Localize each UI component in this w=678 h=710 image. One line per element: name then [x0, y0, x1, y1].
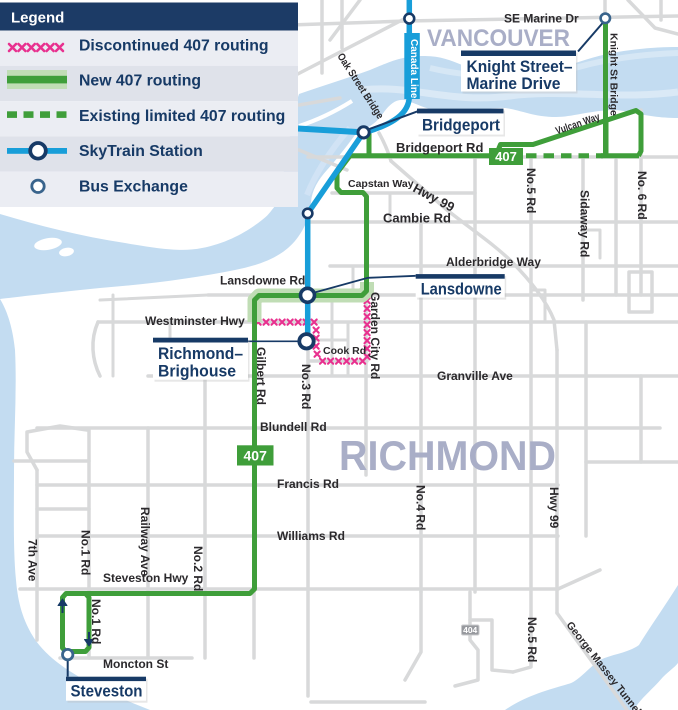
svg-text:Cambie Rd: Cambie Rd — [383, 211, 451, 226]
svg-text:Blundell Rd: Blundell Rd — [260, 420, 327, 434]
svg-text:New 407 routing: New 407 routing — [79, 73, 201, 90]
svg-text:Bus Exchange: Bus Exchange — [79, 179, 188, 196]
svg-text:Garden City Rd: Garden City Rd — [368, 292, 382, 379]
svg-text:VANCOUVER: VANCOUVER — [427, 25, 570, 52]
svg-text:No.1 Rd: No.1 Rd — [89, 599, 103, 644]
svg-text:Hwy 99: Hwy 99 — [547, 487, 561, 529]
svg-text:Bridgeport: Bridgeport — [422, 116, 500, 135]
svg-text:Steveston: Steveston — [71, 682, 143, 701]
svg-text:407: 407 — [495, 149, 517, 164]
svg-text:SkyTrain Station: SkyTrain Station — [79, 143, 203, 160]
svg-text:7th Ave: 7th Ave — [26, 539, 40, 582]
svg-text:Knight St Bridge: Knight St Bridge — [608, 33, 620, 116]
svg-text:No.5 Rd: No.5 Rd — [524, 168, 538, 213]
svg-text:Richmond–: Richmond– — [158, 344, 243, 363]
svg-text:Gilbert Rd: Gilbert Rd — [254, 347, 268, 405]
svg-text:Railway Ave: Railway Ave — [138, 507, 152, 576]
svg-text:Cook Rd: Cook Rd — [323, 345, 366, 357]
svg-text:407: 407 — [244, 448, 268, 464]
svg-text:Westminster Hwy: Westminster Hwy — [145, 314, 245, 328]
svg-text:Bridgeport Rd: Bridgeport Rd — [396, 140, 483, 155]
svg-text:Francis Rd: Francis Rd — [277, 477, 339, 491]
svg-text:Canada Line: Canada Line — [408, 39, 419, 99]
svg-text:Sidaway Rd: Sidaway Rd — [578, 190, 592, 257]
svg-text:Marine Drive: Marine Drive — [467, 74, 561, 93]
svg-text:No.5 Rd: No.5 Rd — [525, 617, 539, 662]
svg-text:Legend: Legend — [11, 10, 64, 27]
svg-text:No. 6 Rd: No. 6 Rd — [635, 171, 649, 220]
svg-text:Lansdowne Rd: Lansdowne Rd — [220, 274, 305, 288]
svg-text:Existing limited 407 routing: Existing limited 407 routing — [79, 108, 285, 125]
svg-text:No.1 Rd: No.1 Rd — [79, 530, 93, 575]
svg-text:Alderbridge Way: Alderbridge Way — [446, 255, 541, 269]
svg-text:SE Marine Dr: SE Marine Dr — [504, 12, 579, 26]
svg-text:Lansdowne: Lansdowne — [421, 280, 502, 299]
svg-text:No.2 Rd: No.2 Rd — [191, 546, 205, 591]
svg-text:Brighouse: Brighouse — [158, 362, 236, 381]
svg-text:Discontinued 407 routing: Discontinued 407 routing — [79, 38, 269, 55]
svg-text:No.3 Rd: No.3 Rd — [299, 364, 313, 409]
svg-text:RICHMOND: RICHMOND — [339, 432, 556, 479]
svg-text:Capstan Way: Capstan Way — [348, 178, 414, 190]
svg-text:Williams Rd: Williams Rd — [277, 529, 345, 543]
svg-text:No.4 Rd: No.4 Rd — [414, 485, 428, 530]
svg-text:Steveston Hwy: Steveston Hwy — [103, 571, 189, 585]
svg-text:Moncton St: Moncton St — [103, 657, 168, 671]
svg-text:Granville Ave: Granville Ave — [437, 369, 513, 383]
svg-text:404: 404 — [463, 625, 477, 635]
